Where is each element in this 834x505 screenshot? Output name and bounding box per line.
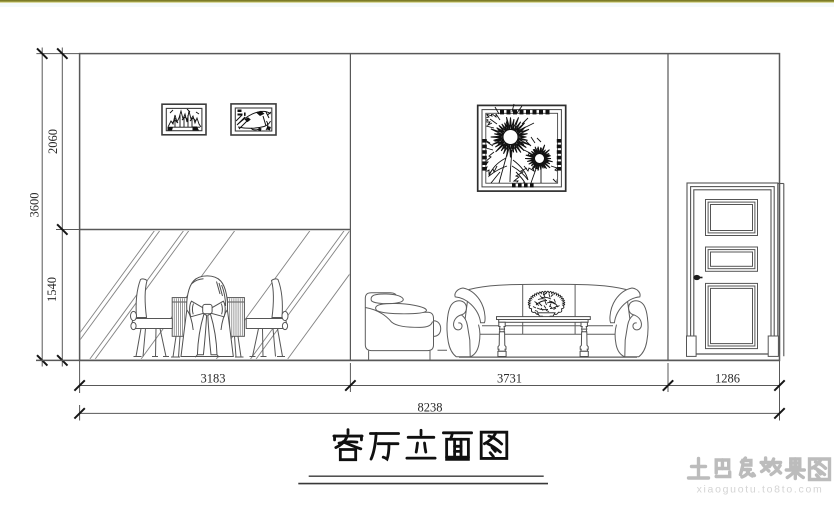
svg-text:2060: 2060 [46,129,60,154]
svg-text:3731: 3731 [497,372,522,386]
svg-text:1540: 1540 [45,277,59,302]
svg-text:8238: 8238 [418,401,443,415]
svg-text:xiaoguotu.to8to.com: xiaoguotu.to8to.com [697,484,824,496]
svg-text:3600: 3600 [28,193,42,218]
svg-text:1286: 1286 [715,372,740,386]
svg-text:3183: 3183 [201,372,226,386]
